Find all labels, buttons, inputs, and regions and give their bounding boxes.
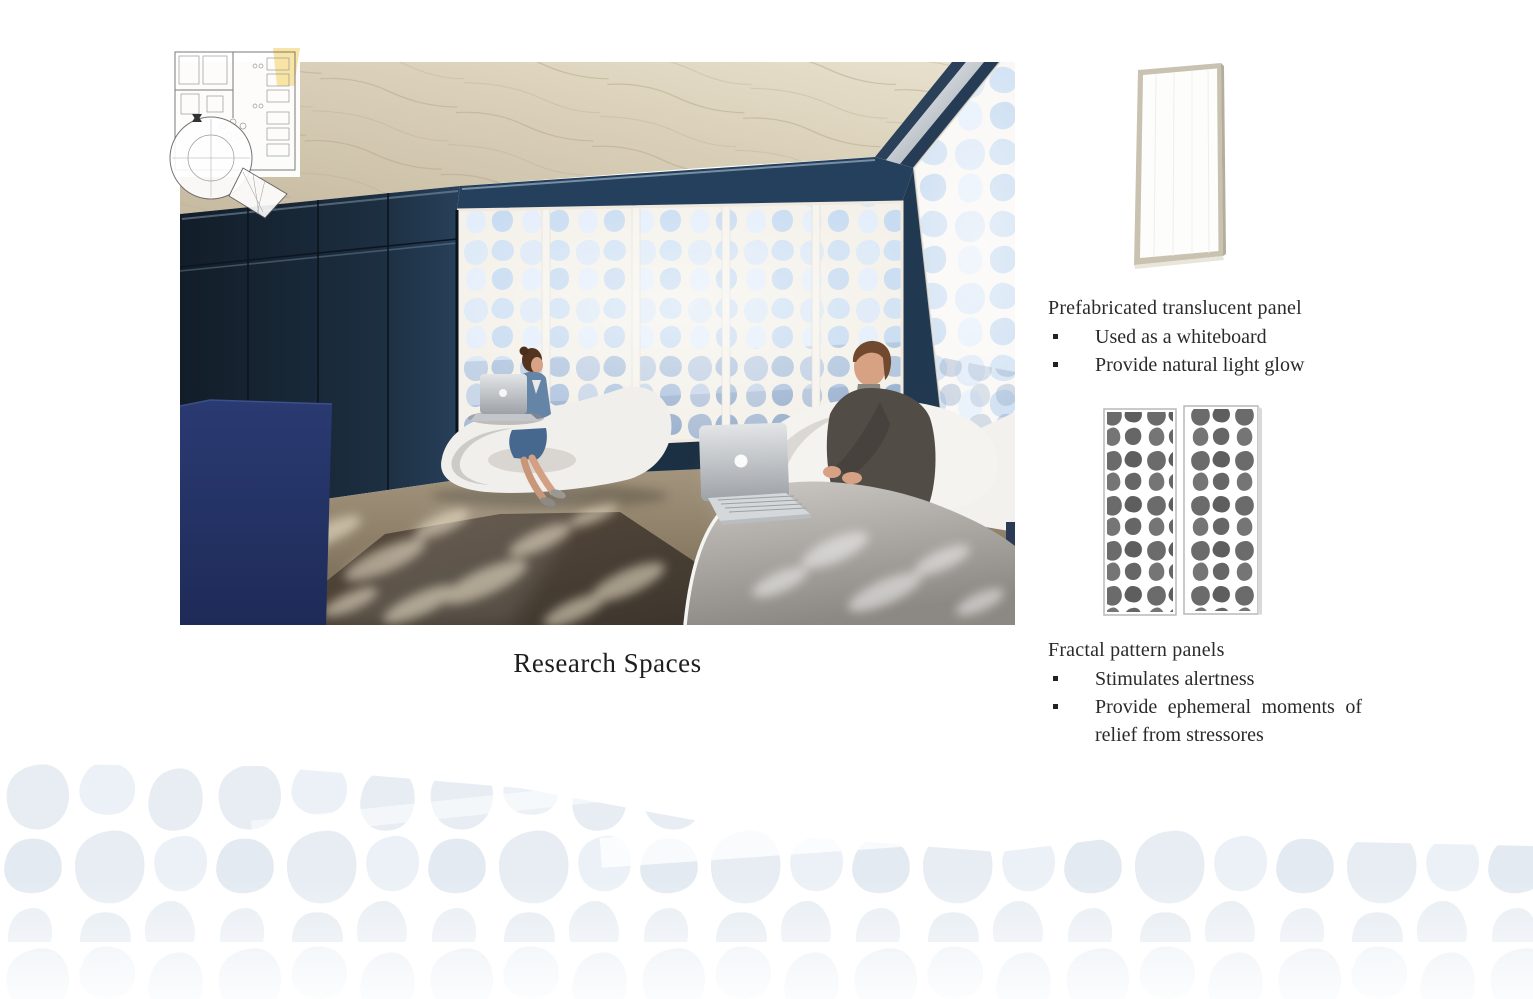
decorative-pattern-band [0,758,1533,999]
note-bullets: Used as a whiteboard Provide natural lig… [1048,323,1368,379]
fractal-panels-note: Fractal pattern panels Stimulates alertn… [1048,636,1362,749]
fractal-panels-image [1100,403,1262,621]
figure-caption: Research Spaces [190,648,1025,679]
note-title: Fractal pattern panels [1048,636,1362,664]
bullet-square-icon [1053,704,1058,709]
bullet-item: Provide natural light glow [1048,351,1368,379]
presentation-slide: Research Spaces Prefabricated translucen… [0,0,1533,999]
blue-partition [180,400,332,625]
bullet-square-icon [1053,676,1058,681]
fractal-panel-right [1184,406,1258,614]
translucent-panel-image [1122,58,1226,272]
research-space-rendering [180,62,1015,625]
apple-logo [499,389,507,397]
fractal-panel-left [1104,409,1176,615]
bullet-square-icon [1053,362,1058,367]
bullet-item: Provide ephemeral moments of relief from… [1048,693,1362,749]
floor-plan-thumbnail [167,46,305,226]
bullet-square-icon [1053,334,1058,339]
apple-logo [735,455,748,468]
translucent-panel-note: Prefabricated translucent panel Used as … [1048,294,1368,379]
bullet-item: Used as a whiteboard [1048,323,1368,351]
bullet-item: Stimulates alertness [1048,665,1362,693]
note-bullets: Stimulates alertness Provide ephemeral m… [1048,665,1362,749]
note-title: Prefabricated translucent panel [1048,294,1368,322]
